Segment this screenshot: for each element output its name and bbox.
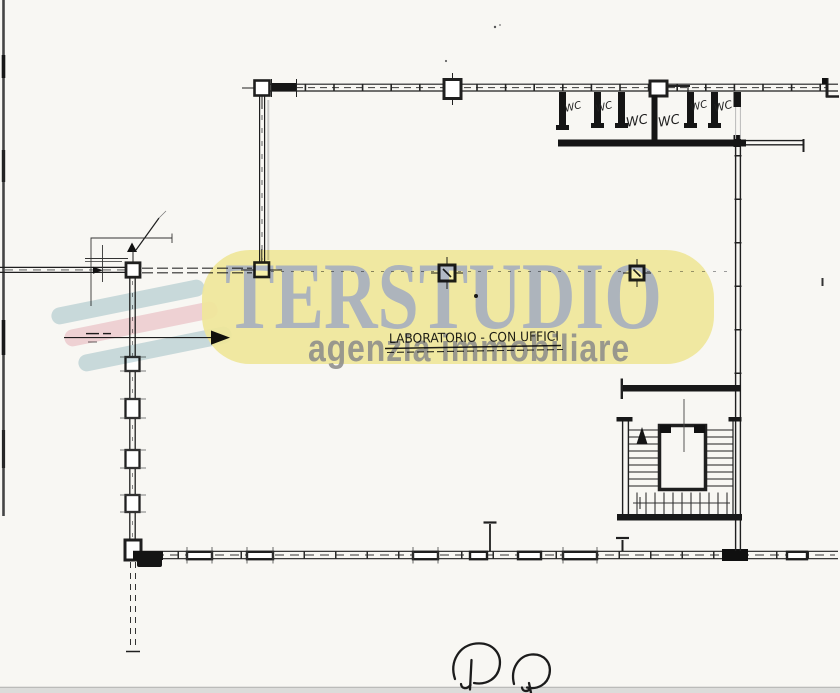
floor-plan-scan-page: LABORATORIO - CON UFFICI WC WC WC WC WC … — [0, 0, 840, 693]
handwritten-circles — [453, 643, 549, 693]
pillar-marker-b — [616, 538, 629, 551]
stair-bottom-wall — [617, 514, 742, 521]
right-wall — [736, 107, 741, 551]
stair-block — [617, 379, 743, 521]
stair-top-wall — [621, 385, 741, 392]
wc-wall-extension — [746, 139, 804, 152]
wall-solid-segment — [272, 83, 296, 92]
column-top-corner — [242, 81, 270, 110]
door-swing — [127, 211, 166, 252]
bottom-wall — [133, 523, 838, 564]
top-wall — [262, 78, 839, 98]
watermark-tagline-text: agenzia immobiliare — [308, 328, 630, 370]
stair-treads-right — [707, 430, 733, 486]
pillar-marker-a — [484, 523, 497, 552]
left-wall-windows — [120, 357, 146, 512]
watermark: TERSTUDIO agenzia immobiliare — [50, 243, 714, 373]
floor-plan-drawing: LABORATORIO - CON UFFICI WC WC WC WC WC … — [0, 0, 840, 693]
column-wc-top — [650, 81, 690, 96]
left-wall-dashed-continuation — [126, 562, 140, 652]
scan-edge-bottom — [0, 688, 840, 693]
stair-treads-bottom — [637, 493, 727, 515]
elevator-shaft — [660, 426, 706, 490]
column-entrance — [126, 250, 140, 277]
plan-ink — [0, 73, 839, 693]
column-top-mid — [444, 73, 461, 105]
upper-left-wall — [260, 96, 269, 264]
wc-label-4: WC — [657, 112, 682, 131]
wc-label-3: WC — [625, 112, 650, 131]
wc-label-1: WC — [564, 100, 583, 115]
